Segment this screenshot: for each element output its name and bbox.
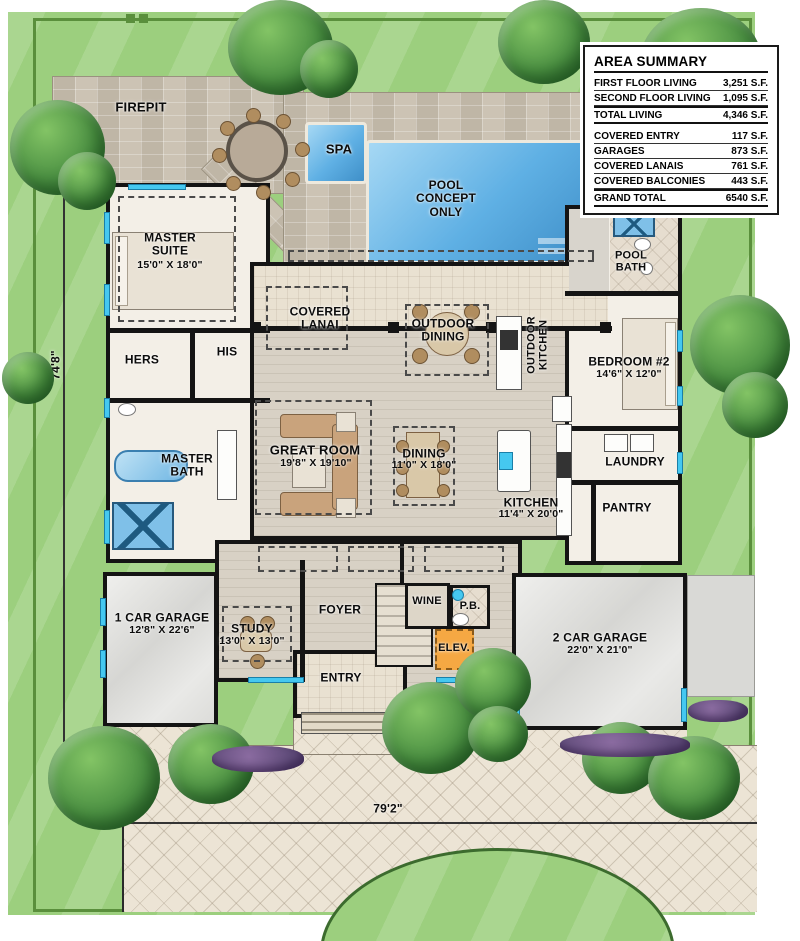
dryer [630, 434, 654, 452]
master-vanity [217, 430, 237, 500]
tree [468, 706, 528, 762]
firepit-seat [276, 114, 291, 129]
hall-ceiling [424, 546, 504, 572]
range [557, 452, 571, 478]
window [681, 688, 687, 722]
shrub [560, 733, 690, 757]
label-outdoor-dining: OUTDOOR DINING [406, 318, 480, 345]
lot-width-dimension: 79'2" [373, 802, 403, 815]
label-hers: HERS [125, 353, 159, 366]
window [100, 598, 106, 626]
label-pool: POOL CONCEPT ONLY [412, 179, 480, 219]
window [128, 184, 186, 190]
label-study: STUDY [231, 622, 273, 635]
one-car-garage-room [103, 572, 218, 727]
firepit-seat [256, 185, 271, 200]
firepit-seat [295, 142, 310, 157]
dims-bedroom-2: 14'6" X 12'0" [596, 369, 661, 381]
label-wine: WINE [412, 595, 442, 607]
label-firepit: FIREPIT [115, 101, 166, 116]
tree [498, 0, 590, 84]
shrub [688, 700, 748, 722]
firepit-seat [226, 176, 241, 191]
balcony-overhang [288, 250, 594, 262]
dims-kitchen: 11'4" X 20'0" [499, 509, 564, 521]
window [104, 212, 110, 244]
window [248, 677, 304, 683]
window [677, 386, 683, 406]
lanai-column [250, 322, 261, 333]
area-summary-table: AREA SUMMARY FIRST FLOOR LIVING3,251 S.F… [583, 45, 779, 215]
label-master-suite: MASTER SUITE [135, 232, 205, 259]
firepit-seat [285, 172, 300, 187]
lanai-column [600, 322, 611, 333]
master-shower [112, 502, 174, 550]
hall-ceiling [258, 546, 338, 572]
dims-great-room: 19'8" X 19'10" [280, 458, 351, 470]
dimension-line-horizontal [125, 822, 757, 824]
gate-mark [126, 14, 135, 23]
wall [190, 328, 195, 403]
washer [604, 434, 628, 452]
label-one-car-garage: 1 CAR GARAGE [115, 611, 209, 624]
summary-row-total: TOTAL LIVING4,346 S.F. [594, 106, 768, 124]
firepit-seat [246, 108, 261, 123]
refrigerator [552, 396, 572, 422]
wall [565, 426, 682, 431]
label-spa: SPA [326, 143, 352, 158]
label-elevator: ELEV. [438, 642, 470, 654]
window [677, 330, 683, 352]
side-pad [687, 575, 755, 697]
window [104, 284, 110, 316]
label-powder-bath: P.B. [460, 600, 481, 612]
firepit-icon [226, 120, 288, 182]
label-laundry: LAUNDRY [605, 455, 665, 468]
wall [106, 398, 270, 403]
summary-row: COVERED LANAIS761 S.F. [594, 159, 768, 174]
gate-mark [139, 14, 148, 23]
lanai-column [388, 322, 399, 333]
summary-row: COVERED ENTRY117 S.F. [594, 129, 768, 144]
firepit-seat [212, 148, 227, 163]
tree [2, 352, 54, 404]
wall [565, 480, 682, 485]
window [100, 650, 106, 678]
label-entry: ENTRY [320, 671, 361, 684]
label-pantry: PANTRY [602, 501, 651, 514]
wall [300, 560, 305, 682]
label-outdoor-kitchen: OUTDOOR KITCHEN [526, 312, 551, 378]
dims-dining: 11'0" X 18'0" [392, 460, 457, 472]
island-sink [499, 452, 513, 470]
summary-row: GARAGES873 S.F. [594, 144, 768, 159]
tree [722, 372, 788, 438]
area-summary-title: AREA SUMMARY [594, 54, 768, 73]
summary-row-grand-total: GRAND TOTAL6540 S.F. [594, 189, 768, 207]
summary-row: COVERED BALCONIES443 S.F. [594, 174, 768, 189]
label-foyer: FOYER [319, 603, 361, 616]
label-master-bath: MASTER BATH [157, 453, 217, 480]
hall-ceiling [348, 546, 414, 572]
label-two-car-garage: 2 CAR GARAGE [553, 631, 647, 644]
tree [58, 152, 116, 210]
window [104, 510, 110, 544]
wall [591, 480, 596, 565]
window [104, 398, 110, 418]
wall [106, 328, 270, 333]
toilet [452, 613, 469, 626]
label-pool-bath: POOL BATH [611, 250, 651, 275]
dims-two-car-garage: 22'0" X 21'0" [567, 645, 632, 657]
floor-plan-canvas: 74'8" 79'2" [0, 0, 800, 941]
dims-study: 13'0" X 13'0" [219, 636, 284, 648]
outdoor-kitchen-counter [496, 316, 522, 390]
label-great-room: GREAT ROOM [270, 444, 361, 459]
toilet [118, 403, 136, 416]
summary-row: FIRST FLOOR LIVING3,251 S.F. [594, 76, 768, 91]
dims-master-suite: 15'0" X 18'0" [137, 260, 202, 272]
tree [48, 726, 160, 830]
label-his: HIS [217, 345, 238, 358]
shrub [212, 746, 304, 772]
grill [500, 330, 518, 350]
tree [300, 40, 358, 98]
label-covered-lanai: COVERED LANAI [281, 306, 359, 333]
summary-row: SECOND FLOOR LIVING1,095 S.F. [594, 91, 768, 106]
window [677, 452, 683, 474]
firepit-seat [220, 121, 235, 136]
wall [565, 291, 682, 296]
dims-one-car-garage: 12'8" X 22'6" [129, 625, 194, 637]
label-bedroom-2: BEDROOM #2 [588, 355, 669, 368]
